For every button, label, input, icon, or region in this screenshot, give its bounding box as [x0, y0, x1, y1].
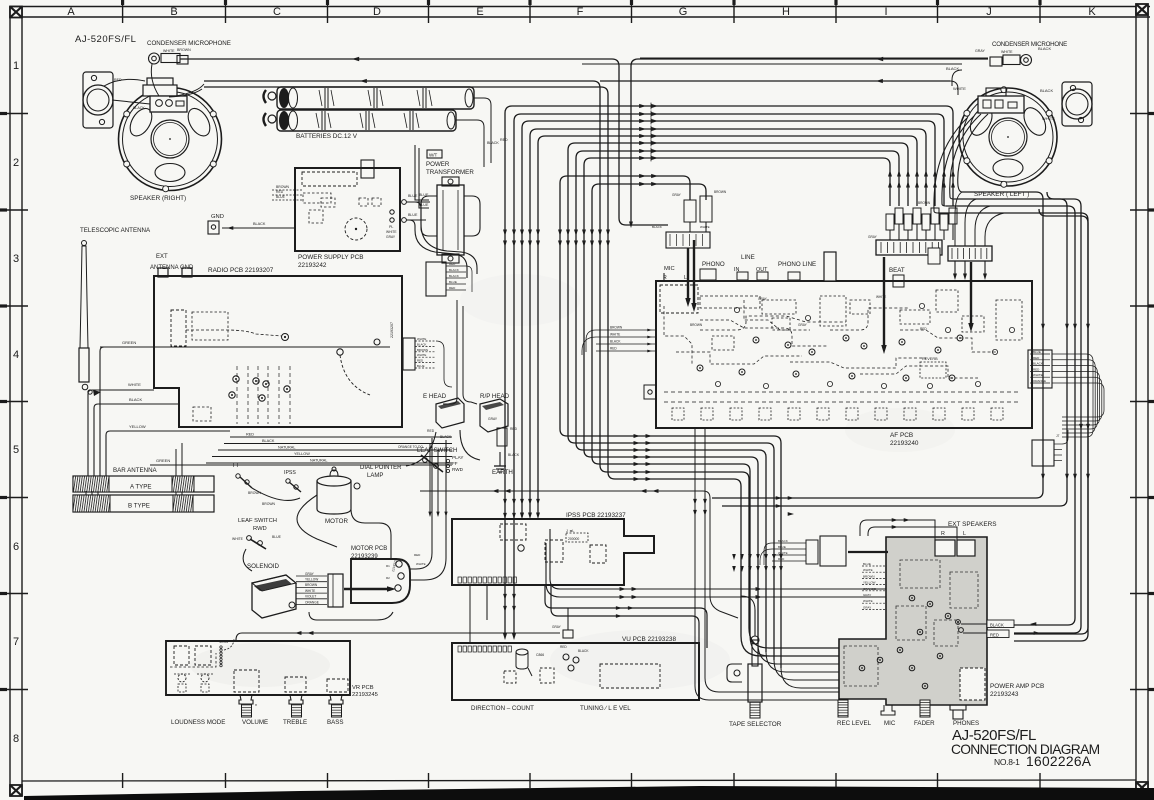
svg-text:TAPE SELECTOR: TAPE SELECTOR [729, 721, 782, 728]
svg-text:WHITE: WHITE [163, 49, 175, 53]
svg-text:EARTH: EARTH [492, 469, 513, 476]
svg-text:RED: RED [500, 138, 508, 142]
svg-text:GREEN: GREEN [156, 458, 170, 463]
svg-text:TELESCOPIC ANTENNA: TELESCOPIC ANTENNA [80, 227, 151, 234]
svg-text:WHITE: WHITE [610, 333, 620, 337]
svg-text:GRAY: GRAY [672, 193, 682, 197]
svg-text:WHITE: WHITE [700, 225, 710, 229]
svg-text:MOTOR PCB: MOTOR PCB [351, 546, 387, 552]
svg-text:GND: GND [211, 214, 224, 220]
svg-text:WHITE: WHITE [778, 551, 788, 555]
svg-text:POWER AMP PCB: POWER AMP PCB [990, 683, 1044, 690]
svg-text:WHITE: WHITE [953, 86, 966, 91]
svg-text:GRAY: GRAY [305, 572, 315, 576]
svg-text:PHONO LINE: PHONO LINE [778, 261, 816, 268]
svg-text:4: 4 [13, 349, 19, 361]
svg-text:BLUE: BLUE [778, 545, 786, 549]
svg-text:BLACK: BLACK [253, 222, 266, 226]
svg-text:22193243: 22193243 [990, 691, 1019, 698]
svg-text:E: E [476, 6, 483, 18]
svg-text:BLUE: BLUE [408, 213, 418, 217]
svg-text:SC301: SC301 [219, 640, 229, 644]
svg-text:BROWN: BROWN [714, 190, 727, 194]
svg-text:BROWN: BROWN [305, 583, 318, 587]
svg-text:22193245: 22193245 [352, 692, 378, 698]
svg-text:PL: PL [389, 225, 393, 229]
svg-text:ORANGE: ORANGE [1033, 379, 1046, 383]
svg-text:WHITE: WHITE [417, 337, 426, 341]
svg-text:RED: RED [1033, 367, 1040, 371]
svg-text:RWD: RWD [452, 467, 464, 472]
svg-text:GRAY: GRAY [863, 593, 871, 597]
svg-text:YELLOW: YELLOW [863, 581, 876, 585]
svg-text:VR PCB: VR PCB [352, 685, 374, 691]
svg-text:MOTOR: MOTOR [325, 518, 348, 525]
svg-text:BLACK: BLACK [449, 268, 459, 272]
svg-text:BLACK: BLACK [417, 342, 427, 346]
svg-text:BROWN: BROWN [690, 323, 703, 327]
svg-text:5: 5 [13, 444, 19, 456]
svg-text:EXT: EXT [156, 254, 168, 260]
svg-text:C: C [273, 6, 281, 18]
svg-text:BLACK: BLACK [1038, 46, 1051, 51]
svg-text:DIAL POINTER: DIAL POINTER [360, 465, 402, 471]
svg-text:ORANGE: ORANGE [305, 600, 319, 604]
svg-text:YELLOW: YELLOW [305, 578, 318, 582]
svg-text:BROWN: BROWN [417, 348, 428, 352]
svg-text:GRAY: GRAY [975, 49, 986, 53]
svg-text:WHITE: WHITE [1033, 373, 1043, 377]
svg-text:FF: FF [452, 461, 458, 466]
svg-text:I: I [884, 6, 887, 18]
svg-text:RED: RED [1033, 356, 1040, 360]
svg-text:WHITE: WHITE [128, 382, 141, 387]
svg-text:BLUE: BLUE [417, 364, 425, 368]
svg-text:G: G [679, 6, 688, 18]
svg-text:*: * [255, 704, 257, 710]
svg-text:RWD: RWD [253, 526, 267, 532]
svg-text:J7: J7 [1056, 434, 1060, 438]
svg-text:WHITE: WHITE [232, 537, 244, 541]
svg-text:BLUE: BLUE [272, 535, 282, 539]
svg-text:VU PCB 22193238: VU PCB 22193238 [622, 636, 676, 643]
svg-text:PLAY: PLAY [452, 455, 463, 460]
svg-text:L: L [963, 531, 966, 537]
svg-text:J ◄L: J ◄L [566, 529, 574, 533]
svg-text:ORANGE: ORANGE [863, 587, 876, 591]
svg-text:LEAF SWITCH: LEAF SWITCH [417, 448, 457, 454]
svg-text:E HEAD: E HEAD [423, 393, 447, 400]
svg-text:RED: RED [417, 359, 423, 363]
svg-text:MIC: MIC [664, 266, 675, 272]
svg-text:BLUE: BLUE [419, 193, 429, 197]
svg-text:VOLUME: VOLUME [242, 719, 268, 726]
svg-text:K: K [1088, 6, 1096, 18]
svg-text:CONDENSER MICROPHONE: CONDENSER MICROPHONE [147, 40, 231, 47]
svg-text:POWER SUPPLY PCB: POWER SUPPLY PCB [298, 254, 363, 261]
svg-text:RED: RED [449, 286, 456, 290]
svg-text:GRAY: GRAY [868, 235, 878, 239]
svg-text:F: F [577, 6, 584, 18]
svg-text:BAR ANTENNA: BAR ANTENNA [113, 467, 158, 474]
svg-text:W/T: W/T [429, 153, 437, 158]
svg-text:BLACK: BLACK [129, 397, 142, 402]
svg-text:REC LEVEL: REC LEVEL [837, 720, 872, 727]
svg-text:WHITE: WHITE [305, 589, 315, 593]
svg-text:200000: 200000 [568, 537, 579, 541]
svg-text:BLUE: BLUE [863, 562, 871, 566]
svg-text:A: A [67, 6, 75, 18]
svg-text:BLACK: BLACK [610, 340, 621, 344]
svg-text:GRAY: GRAY [758, 297, 768, 301]
svg-text:22193240: 22193240 [890, 440, 919, 447]
svg-text:GRAY: GRAY [552, 625, 562, 629]
svg-text:LINE: LINE [741, 254, 755, 261]
svg-text:PHONES: PHONES [953, 720, 979, 727]
svg-text:CONDENSER MICROHONE: CONDENSER MICROHONE [992, 41, 1067, 48]
svg-text:BATTERIES DC.12 V: BATTERIES DC.12 V [296, 133, 358, 140]
svg-text:BROWN: BROWN [918, 201, 931, 205]
svg-text:GREEN: GREEN [122, 340, 136, 345]
svg-text:BLACK: BLACK [652, 225, 662, 229]
svg-text:PHONO: PHONO [702, 261, 725, 268]
svg-text:GRAY: GRAY [488, 417, 498, 421]
svg-text:GRAY: GRAY [798, 323, 808, 327]
svg-text:GRAY: GRAY [386, 235, 396, 239]
svg-text:IPSS: IPSS [284, 470, 296, 476]
svg-text:BROWN: BROWN [610, 326, 623, 330]
svg-text:SOLENOID: SOLENOID [247, 563, 280, 570]
svg-text:BROWN: BROWN [262, 502, 276, 506]
svg-text:22193207: 22193207 [390, 322, 394, 338]
svg-text:LEAF SWITCH: LEAF SWITCH [238, 518, 277, 524]
svg-text:AF PCB: AF PCB [890, 432, 913, 439]
svg-text:BLACK: BLACK [487, 141, 499, 145]
svg-text:ORANGE TO-DO: ORANGE TO-DO [398, 445, 423, 449]
svg-text:BROWN: BROWN [863, 574, 875, 578]
svg-text:RED: RED [427, 429, 435, 433]
svg-text:A TYPE: A TYPE [130, 484, 152, 491]
svg-text:R1: R1 [386, 564, 390, 568]
svg-text:YELLOW: YELLOW [294, 452, 310, 456]
svg-text:2: 2 [13, 157, 19, 169]
svg-text:WHITE: WHITE [417, 353, 426, 357]
svg-text:BLACK: BLACK [449, 274, 459, 278]
svg-text:WHITE: WHITE [863, 599, 873, 603]
svg-text:BLACK: BLACK [1040, 88, 1053, 93]
svg-text:D: D [373, 6, 381, 18]
svg-text:WHITE: WHITE [876, 295, 886, 299]
svg-text:BLACK: BLACK [778, 539, 788, 543]
svg-text:BROWN: BROWN [276, 185, 290, 189]
svg-text:GRAY: GRAY [863, 605, 871, 609]
svg-text:WHITE: WHITE [1042, 116, 1055, 121]
svg-text:RED: RED [449, 262, 456, 266]
svg-text:1602226A: 1602226A [1026, 754, 1092, 769]
svg-text:FADER: FADER [914, 720, 935, 727]
svg-text:REVERB: REVERB [922, 357, 938, 361]
svg-text:6: 6 [13, 541, 19, 553]
svg-text:BLACK: BLACK [133, 106, 145, 110]
svg-text:L: L [684, 275, 687, 281]
svg-text:BROWN: BROWN [177, 48, 191, 52]
svg-text:BLACK: BLACK [440, 435, 452, 439]
svg-text:IPSS PCB 22193237: IPSS PCB 22193237 [566, 512, 626, 519]
svg-text:NO.8-1: NO.8-1 [994, 757, 1020, 767]
svg-text:3: 3 [13, 253, 19, 265]
svg-text:NATURAL: NATURAL [310, 459, 327, 463]
svg-text:R2: R2 [386, 576, 390, 580]
svg-text:AJ-520FS/FL: AJ-520FS/FL [75, 34, 136, 45]
svg-text:TRANSFORMER: TRANSFORMER [426, 169, 474, 176]
svg-text:RED: RED [920, 327, 927, 331]
svg-text:8: 8 [13, 733, 19, 745]
svg-text:H: H [782, 6, 790, 18]
svg-text:LAMP: LAMP [367, 473, 383, 479]
svg-text:SPEAKER (RIGHT): SPEAKER (RIGHT) [130, 195, 186, 202]
svg-text:RED: RED [246, 433, 254, 437]
svg-text:RED: RED [414, 553, 421, 557]
svg-text:B TYPE: B TYPE [128, 503, 150, 510]
svg-text:BLACK: BLACK [1033, 362, 1043, 366]
svg-text:RED: RED [778, 557, 785, 561]
svg-text:1: 1 [13, 60, 19, 72]
svg-text:FF: FF [233, 463, 241, 469]
svg-text:VIOLET: VIOLET [305, 595, 316, 599]
svg-text:TUNING ∕ L E VEL: TUNING ∕ L E VEL [580, 705, 631, 712]
svg-text:DIRECTION – COUNT: DIRECTION – COUNT [471, 705, 534, 712]
svg-text:RED: RED [990, 632, 999, 637]
svg-text:NATURAL: NATURAL [278, 446, 295, 450]
svg-text:7: 7 [13, 636, 19, 648]
svg-text:BLACK: BLACK [990, 622, 1004, 627]
svg-text:B: B [170, 6, 177, 18]
svg-text:LOUDNESS MODE: LOUDNESS MODE [171, 719, 225, 726]
svg-text:RED: RED [610, 347, 617, 351]
svg-text:BLUE: BLUE [276, 195, 286, 199]
svg-text:BLACK: BLACK [578, 649, 589, 653]
svg-text:BLUE: BLUE [449, 280, 457, 284]
svg-text:BLUE: BLUE [1033, 350, 1041, 354]
svg-text:WHITE: WHITE [416, 562, 426, 566]
svg-text:C866: C866 [536, 653, 544, 657]
svg-text:TREBLE: TREBLE [283, 719, 307, 726]
svg-text:YELLOW: YELLOW [129, 424, 146, 429]
svg-text:RED: RED [276, 190, 284, 194]
svg-text:WHITE: WHITE [863, 568, 873, 572]
svg-text:MIC: MIC [884, 720, 896, 727]
svg-text:RED: RED [560, 645, 567, 649]
svg-text:RADIO PCB 22193207: RADIO PCB 22193207 [208, 267, 274, 274]
svg-text:WHITE: WHITE [1001, 50, 1013, 54]
svg-text:22193242: 22193242 [298, 262, 327, 269]
svg-text:BLACK: BLACK [262, 439, 275, 443]
svg-text:J: J [986, 6, 992, 18]
svg-text:BASS: BASS [327, 719, 344, 726]
svg-text:WHITE: WHITE [386, 230, 397, 234]
svg-text:BROWN: BROWN [248, 491, 262, 495]
svg-text:R: R [941, 531, 945, 537]
svg-text:POWER: POWER [426, 161, 450, 168]
svg-text:BEAT: BEAT [889, 267, 905, 274]
svg-text:BLUE: BLUE [408, 194, 418, 198]
